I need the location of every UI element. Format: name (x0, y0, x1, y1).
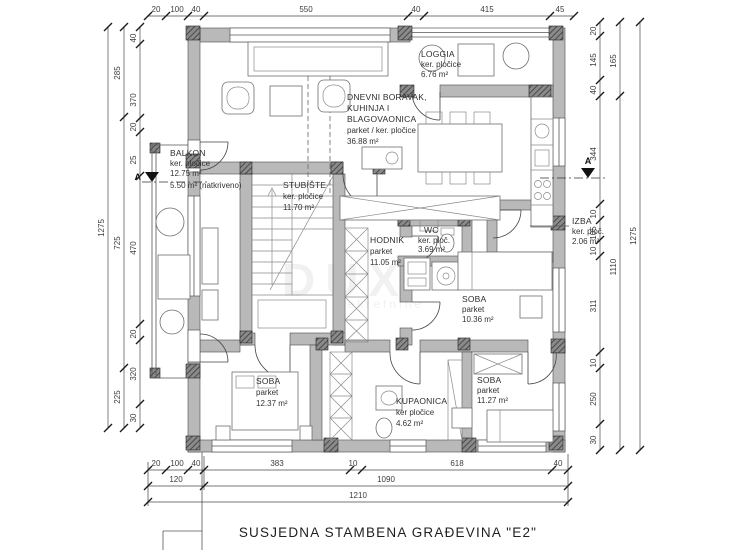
room-area: 5.50 m² (natkriveno) (170, 181, 242, 190)
room-area: 6.76 m² (421, 70, 448, 79)
dim-label: 20 (589, 26, 598, 35)
dim-label: 10 (589, 358, 598, 367)
room-finish: ker. pločice (421, 60, 462, 69)
dim-label: 40 (192, 459, 201, 468)
dim-label: 100 (170, 459, 184, 468)
dim-label: 383 (270, 459, 284, 468)
room-finish: parket (462, 305, 485, 314)
room-name: WC (424, 225, 439, 235)
dim-label: 100 (170, 5, 184, 14)
neighbour-building-title: SUSJEDNA STAMBENA GRAĐEVINA "E2" (239, 525, 537, 540)
dim-label: 550 (299, 5, 313, 14)
dim-label: 10 (589, 209, 598, 218)
room-area: 4.62 m² (396, 419, 423, 428)
room-name: SOBA (256, 376, 281, 386)
dim-label: 25 (129, 155, 138, 164)
floor-plan-canvas: DUX nekretnine (0, 0, 740, 550)
dim-label: 120 (169, 475, 183, 484)
room-name: STUBIŠTE (283, 180, 326, 190)
boiler-unit (404, 258, 430, 290)
dim-label: 45 (556, 5, 565, 14)
room-name: BALKON (170, 148, 206, 158)
room-label-kupaonica: KUPAONICA ker pločice 4.62 m² (396, 396, 447, 428)
dim-label: 1275 (629, 227, 638, 245)
room-name: BLAGOVAONICA (347, 114, 416, 124)
room-finish: ker. pločice (283, 192, 324, 201)
kitchen-cabinet (362, 147, 402, 169)
dim-label: 105 (589, 226, 598, 240)
room-name: KUPAONICA (396, 396, 447, 406)
dim-label: 1210 (349, 491, 367, 500)
washing-machine (432, 262, 460, 290)
room-label-soba1: SOBA parket 10.36 m² (462, 294, 494, 324)
dim-label: 10 (349, 459, 358, 468)
dim-label: 20 (152, 459, 161, 468)
dim-label: 1090 (377, 475, 395, 484)
room-label-loggia: LOGGIA ker. pločice 6.76 m² (421, 49, 462, 79)
room-area: 12.37 m² (256, 399, 288, 408)
dim-label: 618 (450, 459, 464, 468)
room-name: KUHINJA I (347, 103, 389, 113)
dim-label: 10 (589, 246, 598, 255)
dim-label: 30 (129, 413, 138, 422)
dining-table (418, 112, 502, 184)
dim-label: 311 (589, 299, 598, 312)
coffee-table (270, 86, 302, 116)
armchair (222, 82, 254, 114)
tv-cabinet (202, 228, 218, 320)
room-name: SOBA (462, 294, 487, 304)
dim-label: 20 (129, 122, 138, 131)
room-label-living: DNEVNI BORAVAK, KUHINJA I BLAGOVAONICA p… (347, 92, 427, 146)
room-area: 10.36 m² (462, 315, 494, 324)
room-label-hodnik: HODNIK parket 11.05 m² (370, 235, 404, 267)
room-area: 3.69 m² (418, 245, 445, 254)
room-finish: parket (370, 247, 393, 256)
room-finish: parket (477, 386, 500, 395)
section-triangle-icon (581, 168, 595, 178)
kitchen-counter (531, 97, 553, 227)
dim-label: 40 (589, 85, 598, 94)
dim-label: 20 (152, 5, 161, 14)
room-finish: ker. pločice (170, 159, 211, 168)
balcony-furniture (156, 208, 190, 334)
dimension-chain-top: 20 100 40 550 40 415 45 (144, 5, 578, 20)
room-area: 11.70 m² (283, 203, 314, 212)
dim-label: 40 (129, 33, 138, 42)
room-finish: ker pločice (396, 408, 435, 417)
kitchen-island (340, 196, 500, 220)
room-name: SOBA (477, 375, 502, 385)
dimension-chain-left: 1275 285 725 225 40 370 20 25 470 20 320… (97, 23, 144, 432)
dim-label: 225 (113, 390, 122, 404)
room-name: HODNIK (370, 235, 404, 245)
dim-label: 370 (129, 93, 138, 107)
dimension-chain-right: 20 145 40 344 10 105 10 311 10 250 30 16… (589, 18, 644, 454)
armchair (318, 80, 350, 112)
section-label: A (135, 172, 142, 182)
dim-label: 40 (554, 459, 563, 468)
dim-label: 415 (480, 5, 494, 14)
room-label-soba3: SOBA parket 11.27 m² (477, 375, 508, 405)
room-finish: parket (256, 388, 279, 397)
dim-label: 1110 (609, 258, 618, 275)
dim-label: 40 (412, 5, 421, 14)
room-finish: ker. ploč. (572, 227, 604, 236)
dim-label: 30 (589, 435, 598, 444)
sofa (248, 42, 388, 76)
dim-label: 320 (129, 367, 138, 381)
dim-label: 470 (129, 241, 138, 255)
dim-label: 165 (609, 54, 618, 68)
dim-label: 20 (129, 329, 138, 338)
room-name: DNEVNI BORAVAK, (347, 92, 427, 102)
dim-label: 725 (113, 236, 122, 250)
room-area: 12.75 m² (170, 169, 202, 178)
section-triangle-icon (145, 172, 159, 182)
dim-label: 1275 (97, 219, 106, 237)
dim-label: 145 (589, 53, 598, 67)
room-area: 11.27 m² (477, 396, 508, 405)
dimension-chain-bottom: 20 100 40 383 10 618 40 120 1090 1210 (144, 454, 572, 506)
room-finish: parket / ker. pločice (347, 126, 416, 135)
wardrobe (474, 354, 522, 374)
dim-label: 40 (192, 5, 201, 14)
dim-label: 285 (113, 66, 122, 80)
room-finish: ker. ploč. (418, 236, 450, 245)
dim-label: 344 (589, 147, 598, 161)
room-name: LOGGIA (421, 49, 455, 59)
room-area: 36.88 m² (347, 137, 379, 146)
room-area: 11.05 m² (370, 258, 401, 267)
dim-label: 250 (589, 392, 598, 406)
